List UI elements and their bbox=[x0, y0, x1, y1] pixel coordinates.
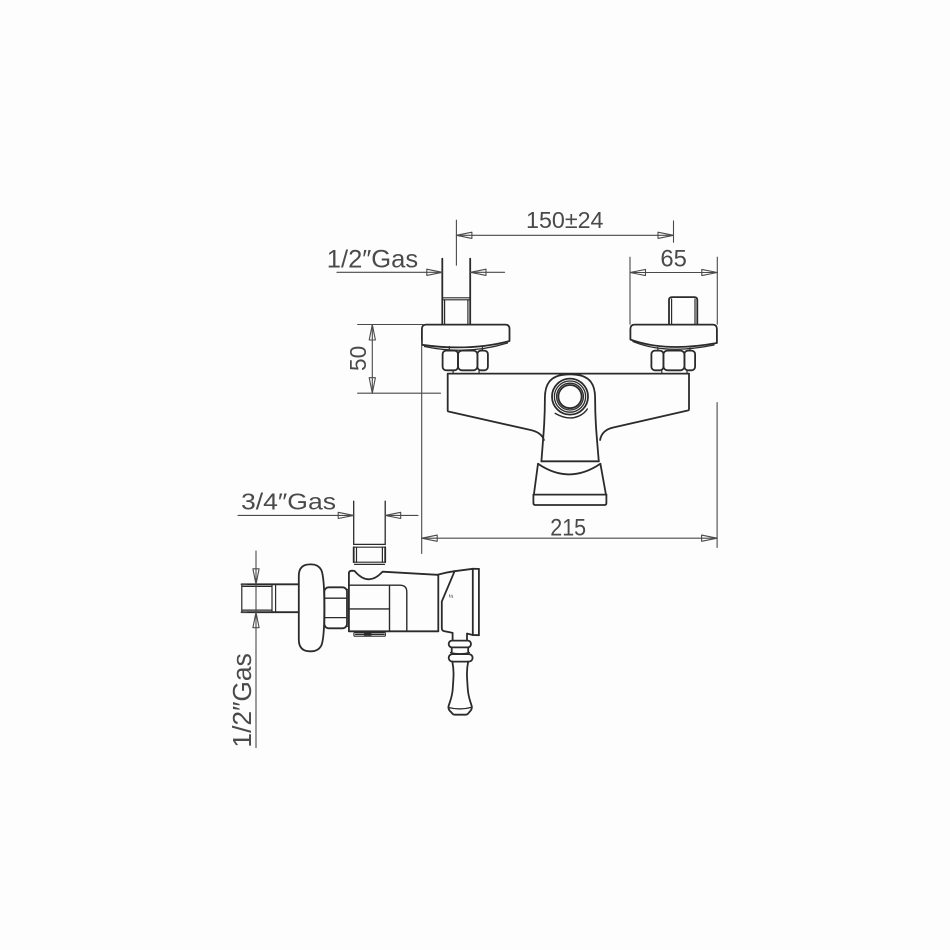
svg-text:50: 50 bbox=[345, 346, 371, 371]
svg-text:1/2″Gas: 1/2″Gas bbox=[327, 246, 418, 274]
svg-text:3/4″Gas: 3/4″Gas bbox=[241, 488, 336, 514]
svg-text:1/2″Gas: 1/2″Gas bbox=[229, 653, 257, 747]
svg-text:215: 215 bbox=[550, 515, 586, 542]
svg-text:150±24: 150±24 bbox=[526, 207, 604, 233]
svg-text:65: 65 bbox=[660, 246, 687, 273]
